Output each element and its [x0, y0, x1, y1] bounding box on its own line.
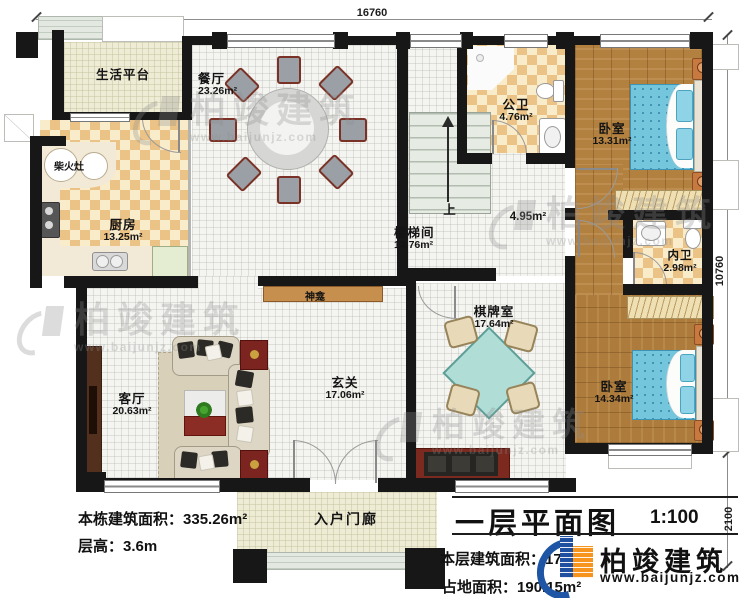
- shrine-wall: [258, 276, 416, 286]
- wall: [623, 218, 633, 258]
- wall: [406, 268, 496, 281]
- platform-sill: [102, 16, 184, 42]
- brand-logo-building-blue: [560, 536, 573, 578]
- stairs-arrow-head: [442, 116, 454, 127]
- wall: [565, 256, 575, 448]
- title-rule-bottom: [452, 533, 738, 535]
- dim-right-upper-label: 10760: [714, 243, 726, 299]
- wall: [76, 288, 87, 484]
- bed-pillow: [680, 386, 695, 414]
- porch-column-left: [233, 549, 267, 583]
- dining-chair: [339, 118, 367, 142]
- pier: [396, 32, 410, 49]
- brand-url: www.baijunjz.com: [600, 570, 741, 585]
- washbasin-bowl: [544, 126, 561, 148]
- kitchen-dining-divider: [188, 120, 191, 276]
- toilet-tank: [553, 80, 564, 102]
- side-table: [240, 450, 268, 480]
- right-sill-2: [711, 160, 739, 210]
- dining-chair: [277, 176, 301, 204]
- label-wood-stove: 柴火灶: [54, 158, 84, 173]
- label-stairwell: 楼梯间 13.76m²: [394, 226, 460, 252]
- dim-line-right: [727, 36, 728, 568]
- kitchen-sink-bowl: [96, 255, 109, 268]
- sofa-cushion: [235, 406, 254, 424]
- wall: [565, 208, 575, 220]
- wall: [702, 36, 713, 454]
- bed-pillow: [676, 90, 693, 122]
- sofa-pillow: [198, 454, 215, 471]
- fridge: [152, 246, 188, 278]
- pier: [212, 32, 227, 49]
- window: [227, 34, 335, 48]
- bedroom-top-door-leaf: [577, 168, 617, 170]
- wall: [30, 138, 42, 288]
- plant-icon: [196, 402, 212, 418]
- dining-chair: [277, 56, 301, 84]
- right-sill-1: [711, 44, 739, 70]
- dining-table-top: [260, 101, 314, 155]
- window: [608, 444, 692, 456]
- pier: [333, 32, 348, 49]
- sofa-pillow: [236, 389, 254, 407]
- label-bedroom-top: 卧室 13.31m²: [580, 122, 644, 148]
- dim-tick: [703, 12, 714, 23]
- label-public-bath: 公卫 4.76m²: [486, 98, 546, 124]
- pier: [556, 32, 574, 49]
- title-rule-top: [452, 496, 738, 498]
- bedroom-bottom-window-sill: [608, 455, 692, 469]
- label-bedroom-bottom: 卧室 14.34m²: [578, 380, 650, 406]
- gas-burner-2: [45, 221, 53, 229]
- kitchen-door-leaf: [178, 118, 180, 152]
- floor-plan: 16760 10760 2100: [0, 0, 750, 598]
- dining-chair: [209, 118, 237, 142]
- tv-cabinet-door: [428, 456, 446, 472]
- porch-column-right: [405, 548, 445, 589]
- window: [70, 113, 130, 122]
- sofa-pillow: [205, 344, 223, 362]
- note-floor-height: 层高：3.6m: [78, 535, 157, 556]
- entry-door-right-leaf: [375, 440, 377, 483]
- dim-top-label: 16760: [344, 7, 400, 19]
- gas-burner-1: [45, 207, 53, 215]
- toilet-icon: [685, 228, 701, 249]
- wall: [565, 36, 575, 168]
- stairs-arrow-line: [447, 126, 449, 202]
- note-total-building-area: 本栋建筑面积：335.26m²: [78, 508, 247, 529]
- platform-steps: [38, 16, 104, 40]
- bed-pillow: [680, 354, 695, 382]
- wall: [526, 153, 568, 164]
- wall: [64, 276, 198, 288]
- inner-bath-door-leaf: [633, 252, 635, 285]
- sofa-cushion: [235, 370, 255, 389]
- wardrobe: [627, 296, 714, 319]
- page-title: 一层平面图: [455, 500, 620, 542]
- label-stairs-up: 上: [438, 203, 462, 217]
- window: [410, 34, 462, 48]
- window: [600, 34, 690, 48]
- window: [504, 34, 548, 48]
- label-entry-porch: 入户门廊: [294, 512, 398, 528]
- wall: [457, 153, 492, 164]
- wall: [623, 284, 712, 295]
- sofa-cushion: [177, 341, 195, 359]
- wall: [52, 30, 64, 120]
- kitchen-sink-bowl: [110, 255, 123, 268]
- label-shrine: 神龛: [305, 288, 325, 303]
- right-sill-3: [711, 398, 739, 452]
- label-living-room: 客厅 20.63m²: [92, 392, 172, 418]
- label-inner-bath: 内卫 2.98m²: [652, 250, 708, 275]
- bedroom-bottom-door-leaf: [578, 220, 580, 257]
- public-bath-door-leaf: [492, 120, 494, 154]
- label-chess-room: 棋牌室 17.64m²: [452, 305, 536, 331]
- window: [104, 480, 220, 493]
- pillar: [16, 32, 38, 58]
- window: [455, 480, 549, 493]
- label-kitchen: 厨房 13.25m²: [88, 218, 158, 244]
- sofa-cushion: [180, 451, 198, 469]
- washbasin-bowl: [641, 225, 661, 241]
- bed-pillow: [676, 128, 693, 160]
- entry-door-left-leaf: [293, 440, 295, 483]
- shower-drain: [476, 54, 484, 62]
- tv-cabinet-door: [452, 456, 470, 472]
- label-life-platform: 生活平台: [73, 68, 173, 82]
- label-foyer: 玄关 17.06m²: [300, 376, 390, 402]
- dim-right-lower-label: 2100: [723, 495, 735, 543]
- label-hallway-area: 4.95m²: [498, 211, 558, 224]
- coffee-table-lower: [184, 416, 226, 436]
- wall: [457, 36, 467, 162]
- watermark-logo-icon: [14, 302, 66, 354]
- tv-cabinet-door: [476, 456, 494, 472]
- passage-floor: [198, 276, 258, 290]
- wood-stove-burner-2: [80, 152, 108, 180]
- wall: [182, 36, 192, 120]
- side-table: [240, 340, 268, 370]
- label-dining: 餐厅 23.26m²: [198, 72, 268, 98]
- brand-logo-building-orange: [573, 546, 593, 578]
- sofa-pillow: [236, 425, 254, 443]
- wall: [406, 276, 416, 484]
- drawing-scale: 1:100: [650, 507, 699, 529]
- pier: [690, 32, 713, 49]
